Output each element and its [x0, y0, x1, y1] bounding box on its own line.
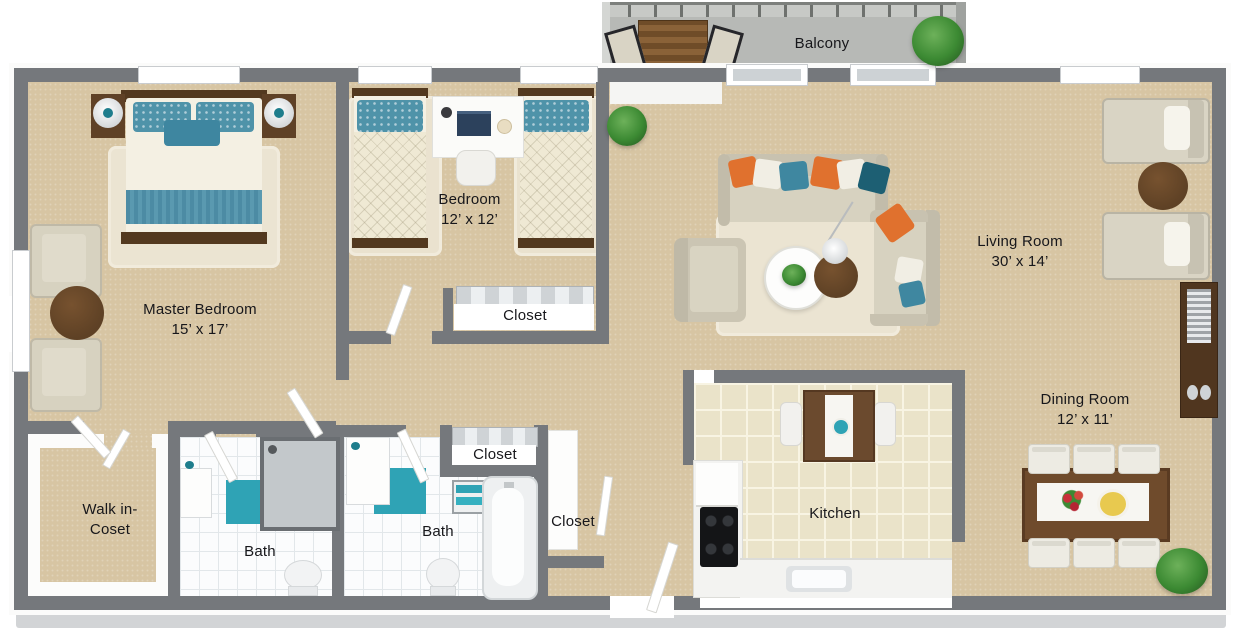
console-dishes	[1187, 289, 1211, 343]
dining-room-label: Dining Room 12’ x 11’	[1005, 390, 1165, 430]
twin-bed-pillow	[523, 100, 589, 132]
closet-entry-name: Closet	[538, 512, 608, 532]
chaise-pillow	[1164, 106, 1190, 150]
master-bed	[121, 90, 267, 244]
living-loveseat	[870, 210, 940, 326]
master-armchair-cushion	[42, 348, 86, 396]
closet-bedroom-wardrobe	[456, 286, 594, 306]
walkin-closet-name-line2: Coset	[50, 520, 170, 540]
closet-entry-wardrobe	[548, 430, 578, 550]
towel-teal-1	[456, 485, 482, 493]
closet-hall-label: Closet	[455, 445, 535, 465]
dining-room-name: Dining Room	[1005, 390, 1165, 410]
master-armchair-top	[30, 224, 102, 298]
kitchen-counter-left	[693, 460, 743, 598]
wall-kitchen-top	[683, 370, 965, 383]
kitchen-name: Kitchen	[775, 504, 895, 524]
balcony-door-left	[726, 64, 808, 86]
bath1-name: Bath	[226, 542, 294, 562]
master-round-table	[50, 286, 104, 340]
wall-closet-entry-bottom	[548, 556, 604, 568]
loveseat-pillow-teal	[898, 280, 926, 308]
window-bedroom-left	[358, 66, 432, 84]
window-master	[138, 66, 240, 84]
bath2-tub	[482, 476, 538, 600]
living-armchair	[674, 238, 746, 322]
closet-entry-label: Closet	[538, 512, 608, 532]
window-bedroom-right	[520, 66, 598, 84]
shower-head	[268, 445, 277, 454]
closet-hall-name: Closet	[455, 445, 535, 465]
bedroom-desk-chair	[456, 150, 496, 186]
closet-hall-wardrobe	[452, 427, 538, 447]
bath2-name: Bath	[404, 522, 472, 542]
closet-bedroom-name: Closet	[470, 306, 580, 326]
living-plant	[607, 106, 647, 146]
dining-plant	[1156, 548, 1208, 594]
window-living-right	[1060, 66, 1140, 84]
chaise-pillow	[1164, 222, 1190, 266]
wall-kitchen-left	[683, 383, 694, 465]
master-bed-accent-pillow	[164, 120, 220, 146]
console-plate-1	[1187, 385, 1198, 400]
living-room-name: Living Room	[945, 232, 1095, 252]
chaise-round-table	[1138, 162, 1188, 210]
kitchen-stool-left	[780, 402, 802, 446]
bedroom-name: Bedroom	[392, 190, 547, 210]
dining-table	[1022, 468, 1170, 542]
master-lamp-left-shade	[103, 108, 113, 118]
master-bedroom-label: Master Bedroom 15’ x 17’	[110, 300, 290, 340]
wall-kitchen-right	[952, 370, 965, 542]
master-bed-footboard	[121, 232, 267, 244]
toilet-tank	[288, 586, 318, 596]
tub-faucet	[504, 482, 514, 488]
desk-plate	[497, 119, 512, 134]
wall-hall-top-left	[349, 331, 391, 344]
wall-master-bedroom-divider	[336, 82, 349, 380]
balcony-label-text: Balcony	[760, 34, 884, 54]
coffee-table-plant	[782, 264, 806, 286]
master-lamp-right-shade	[274, 108, 284, 118]
bath1-label: Bath	[226, 542, 294, 562]
wall-hall-top-right	[432, 331, 443, 344]
living-room-label: Living Room 30’ x 14’	[945, 232, 1095, 272]
master-armchair-bottom	[30, 338, 102, 412]
bedroom-size: 12’ x 12’	[392, 210, 547, 230]
living-sofa	[718, 154, 888, 226]
dining-chair-top-2	[1073, 444, 1115, 474]
dining-plate	[1097, 489, 1129, 519]
wall-inner-panel	[610, 82, 722, 104]
wall-closet-bedroom-bottom	[443, 331, 609, 344]
bath1-shower	[260, 437, 340, 531]
master-armchair-cushion	[42, 234, 86, 282]
kitchen-counter-bottom	[740, 558, 952, 598]
desk-laptop	[457, 111, 491, 136]
kitchen-fridge	[696, 463, 738, 507]
bath1-sink-soap	[185, 461, 194, 469]
twin-bed-pillow	[357, 100, 423, 132]
balcony-label: Balcony	[760, 34, 884, 54]
kitchen-sink	[786, 566, 852, 592]
sofa-pillow-teal-1	[779, 161, 810, 192]
walkin-closet-name-line1: Walk in-	[50, 500, 170, 520]
island-bowl	[832, 418, 850, 436]
armchair-back	[674, 238, 688, 322]
dining-runner	[1037, 483, 1149, 521]
closet-bedroom-label: Closet	[470, 306, 580, 326]
dining-chair-top-3	[1118, 444, 1160, 474]
bedroom-desk	[432, 96, 524, 158]
balcony-railing	[602, 2, 966, 17]
bath2-sink-soap	[351, 442, 360, 450]
master-bed-blanket	[126, 190, 262, 224]
living-room-size: 30’ x 14’	[945, 252, 1095, 272]
dining-chair-bottom-3	[1118, 538, 1160, 568]
bath1-mat	[226, 480, 264, 524]
bath2-label: Bath	[404, 522, 472, 542]
dining-flowers	[1059, 487, 1087, 515]
dining-room-size: 12’ x 11’	[1005, 410, 1165, 430]
chaise-top	[1102, 98, 1210, 164]
tub-basin	[492, 488, 524, 586]
dining-chair-top-1	[1028, 444, 1070, 474]
kitchen-sink-basin	[792, 570, 846, 588]
kitchen-pass-through	[694, 370, 714, 383]
floor-lamp	[822, 238, 848, 264]
dining-chair-bottom-2	[1073, 538, 1115, 568]
towel-teal-2	[456, 497, 482, 505]
bath2-toilet	[424, 558, 460, 594]
kitchen-cooktop	[700, 507, 738, 567]
dining-chair-bottom-1	[1028, 538, 1070, 568]
balcony-table	[638, 20, 708, 68]
bath2-vanity	[346, 437, 390, 505]
master-bedroom-name: Master Bedroom	[110, 300, 290, 320]
master-bedroom-size: 15’ x 17’	[110, 320, 290, 340]
twin-bed-footboard	[352, 238, 428, 248]
balcony-door-right	[850, 64, 936, 86]
kitchen-island-table	[803, 390, 875, 462]
desk-item	[441, 107, 452, 118]
toilet-tank	[430, 586, 456, 596]
living-console	[1180, 282, 1218, 418]
loveseat-arm-bottom	[870, 314, 928, 326]
bath1-toilet	[282, 560, 322, 594]
twin-bed-footboard	[518, 238, 594, 248]
balcony-door-glass	[857, 69, 929, 81]
entry-threshold	[610, 596, 674, 618]
floor-plan: Balcony	[0, 0, 1240, 630]
balcony-door-glass	[733, 69, 801, 81]
chaise-back	[1188, 214, 1204, 274]
kitchen-label: Kitchen	[775, 504, 895, 524]
window-left-wall	[12, 250, 30, 372]
chaise-back	[1188, 100, 1204, 158]
console-plate-2	[1200, 385, 1211, 400]
walkin-closet-label: Walk in- Coset	[50, 500, 170, 540]
bath1-sink	[180, 468, 212, 518]
chaise-bottom	[1102, 212, 1210, 280]
loveseat-back	[926, 210, 940, 326]
wall-bath2-top	[344, 425, 406, 437]
balcony-plant	[912, 16, 964, 66]
bedroom-label: Bedroom 12’ x 12’	[392, 190, 547, 230]
kitchen-stool-right	[874, 402, 896, 446]
armchair-cushion	[690, 246, 738, 312]
